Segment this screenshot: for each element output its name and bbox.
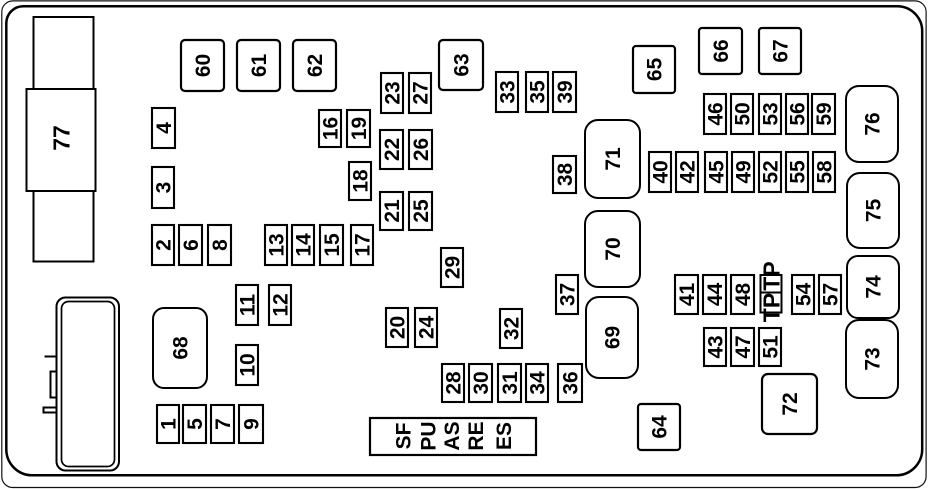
svg-text:68: 68 <box>170 336 193 360</box>
svg-text:19: 19 <box>348 117 371 140</box>
svg-text:2: 2 <box>153 239 176 251</box>
svg-text:16: 16 <box>320 117 343 140</box>
svg-text:TP: TP <box>758 261 784 290</box>
svg-text:13: 13 <box>266 233 289 256</box>
svg-text:42: 42 <box>677 160 700 183</box>
svg-text:17: 17 <box>352 233 375 256</box>
svg-text:71: 71 <box>602 147 625 171</box>
svg-text:5: 5 <box>184 418 207 430</box>
svg-text:21: 21 <box>381 199 404 223</box>
svg-text:22: 22 <box>381 138 404 161</box>
svg-text:4: 4 <box>153 122 176 134</box>
svg-text:11: 11 <box>237 294 260 317</box>
svg-text:77: 77 <box>48 125 74 151</box>
svg-text:29: 29 <box>442 256 465 279</box>
svg-text:12: 12 <box>270 293 293 316</box>
svg-text:14: 14 <box>293 233 316 257</box>
svg-text:74: 74 <box>863 275 886 299</box>
svg-text:49: 49 <box>733 160 756 183</box>
svg-text:52: 52 <box>760 160 783 183</box>
svg-text:45: 45 <box>706 160 729 184</box>
svg-text:1: 1 <box>158 418 181 430</box>
svg-text:72: 72 <box>779 392 802 415</box>
svg-text:AS: AS <box>441 421 464 450</box>
svg-text:66: 66 <box>710 39 733 62</box>
svg-text:34: 34 <box>527 371 550 395</box>
svg-text:60: 60 <box>192 54 215 77</box>
svg-text:36: 36 <box>560 371 583 394</box>
svg-text:38: 38 <box>554 163 577 187</box>
svg-text:6: 6 <box>180 239 203 251</box>
svg-text:76: 76 <box>862 112 885 135</box>
svg-text:32: 32 <box>501 317 524 340</box>
svg-text:PU: PU <box>418 421 441 450</box>
svg-text:70: 70 <box>602 237 625 260</box>
svg-text:75: 75 <box>863 199 886 223</box>
svg-text:69: 69 <box>602 326 625 349</box>
svg-text:47: 47 <box>732 335 755 358</box>
svg-text:23: 23 <box>382 81 405 104</box>
svg-text:40: 40 <box>650 160 673 183</box>
svg-text:RE: RE <box>465 421 488 450</box>
svg-text:20: 20 <box>387 316 410 339</box>
svg-text:3: 3 <box>153 182 176 194</box>
svg-text:61: 61 <box>248 54 271 78</box>
svg-text:25: 25 <box>410 199 433 223</box>
svg-text:28: 28 <box>443 371 466 395</box>
svg-text:30: 30 <box>470 371 493 394</box>
svg-text:41: 41 <box>676 283 699 307</box>
svg-text:55: 55 <box>787 160 810 184</box>
svg-text:50: 50 <box>732 102 755 125</box>
svg-text:31: 31 <box>499 371 522 395</box>
svg-text:54: 54 <box>793 283 816 307</box>
svg-text:24: 24 <box>416 316 439 340</box>
svg-text:15: 15 <box>321 233 344 257</box>
svg-text:33: 33 <box>497 80 520 103</box>
svg-text:10: 10 <box>237 353 260 376</box>
svg-text:56: 56 <box>787 102 810 125</box>
svg-text:57: 57 <box>820 283 843 306</box>
svg-text:7: 7 <box>212 418 235 430</box>
svg-text:62: 62 <box>304 54 327 77</box>
svg-text:35: 35 <box>527 80 550 104</box>
svg-text:67: 67 <box>770 39 793 62</box>
svg-text:SF: SF <box>392 422 415 449</box>
svg-text:18: 18 <box>350 169 373 193</box>
svg-text:8: 8 <box>209 239 232 251</box>
svg-text:51: 51 <box>760 335 783 359</box>
svg-text:ES: ES <box>493 422 516 450</box>
svg-text:53: 53 <box>760 102 783 125</box>
svg-text:46: 46 <box>705 102 728 125</box>
svg-text:43: 43 <box>705 335 728 358</box>
svg-text:27: 27 <box>410 81 433 104</box>
svg-text:TP: TP <box>758 293 784 322</box>
svg-text:9: 9 <box>241 418 264 430</box>
svg-text:63: 63 <box>451 53 474 76</box>
svg-text:48: 48 <box>732 283 755 307</box>
svg-text:64: 64 <box>649 415 672 439</box>
svg-text:65: 65 <box>644 58 667 82</box>
svg-text:37: 37 <box>557 283 580 306</box>
svg-text:73: 73 <box>862 347 885 370</box>
svg-text:59: 59 <box>813 102 836 125</box>
svg-text:39: 39 <box>554 80 577 103</box>
svg-text:58: 58 <box>814 160 837 184</box>
svg-text:26: 26 <box>410 138 433 161</box>
svg-text:44: 44 <box>704 283 727 307</box>
